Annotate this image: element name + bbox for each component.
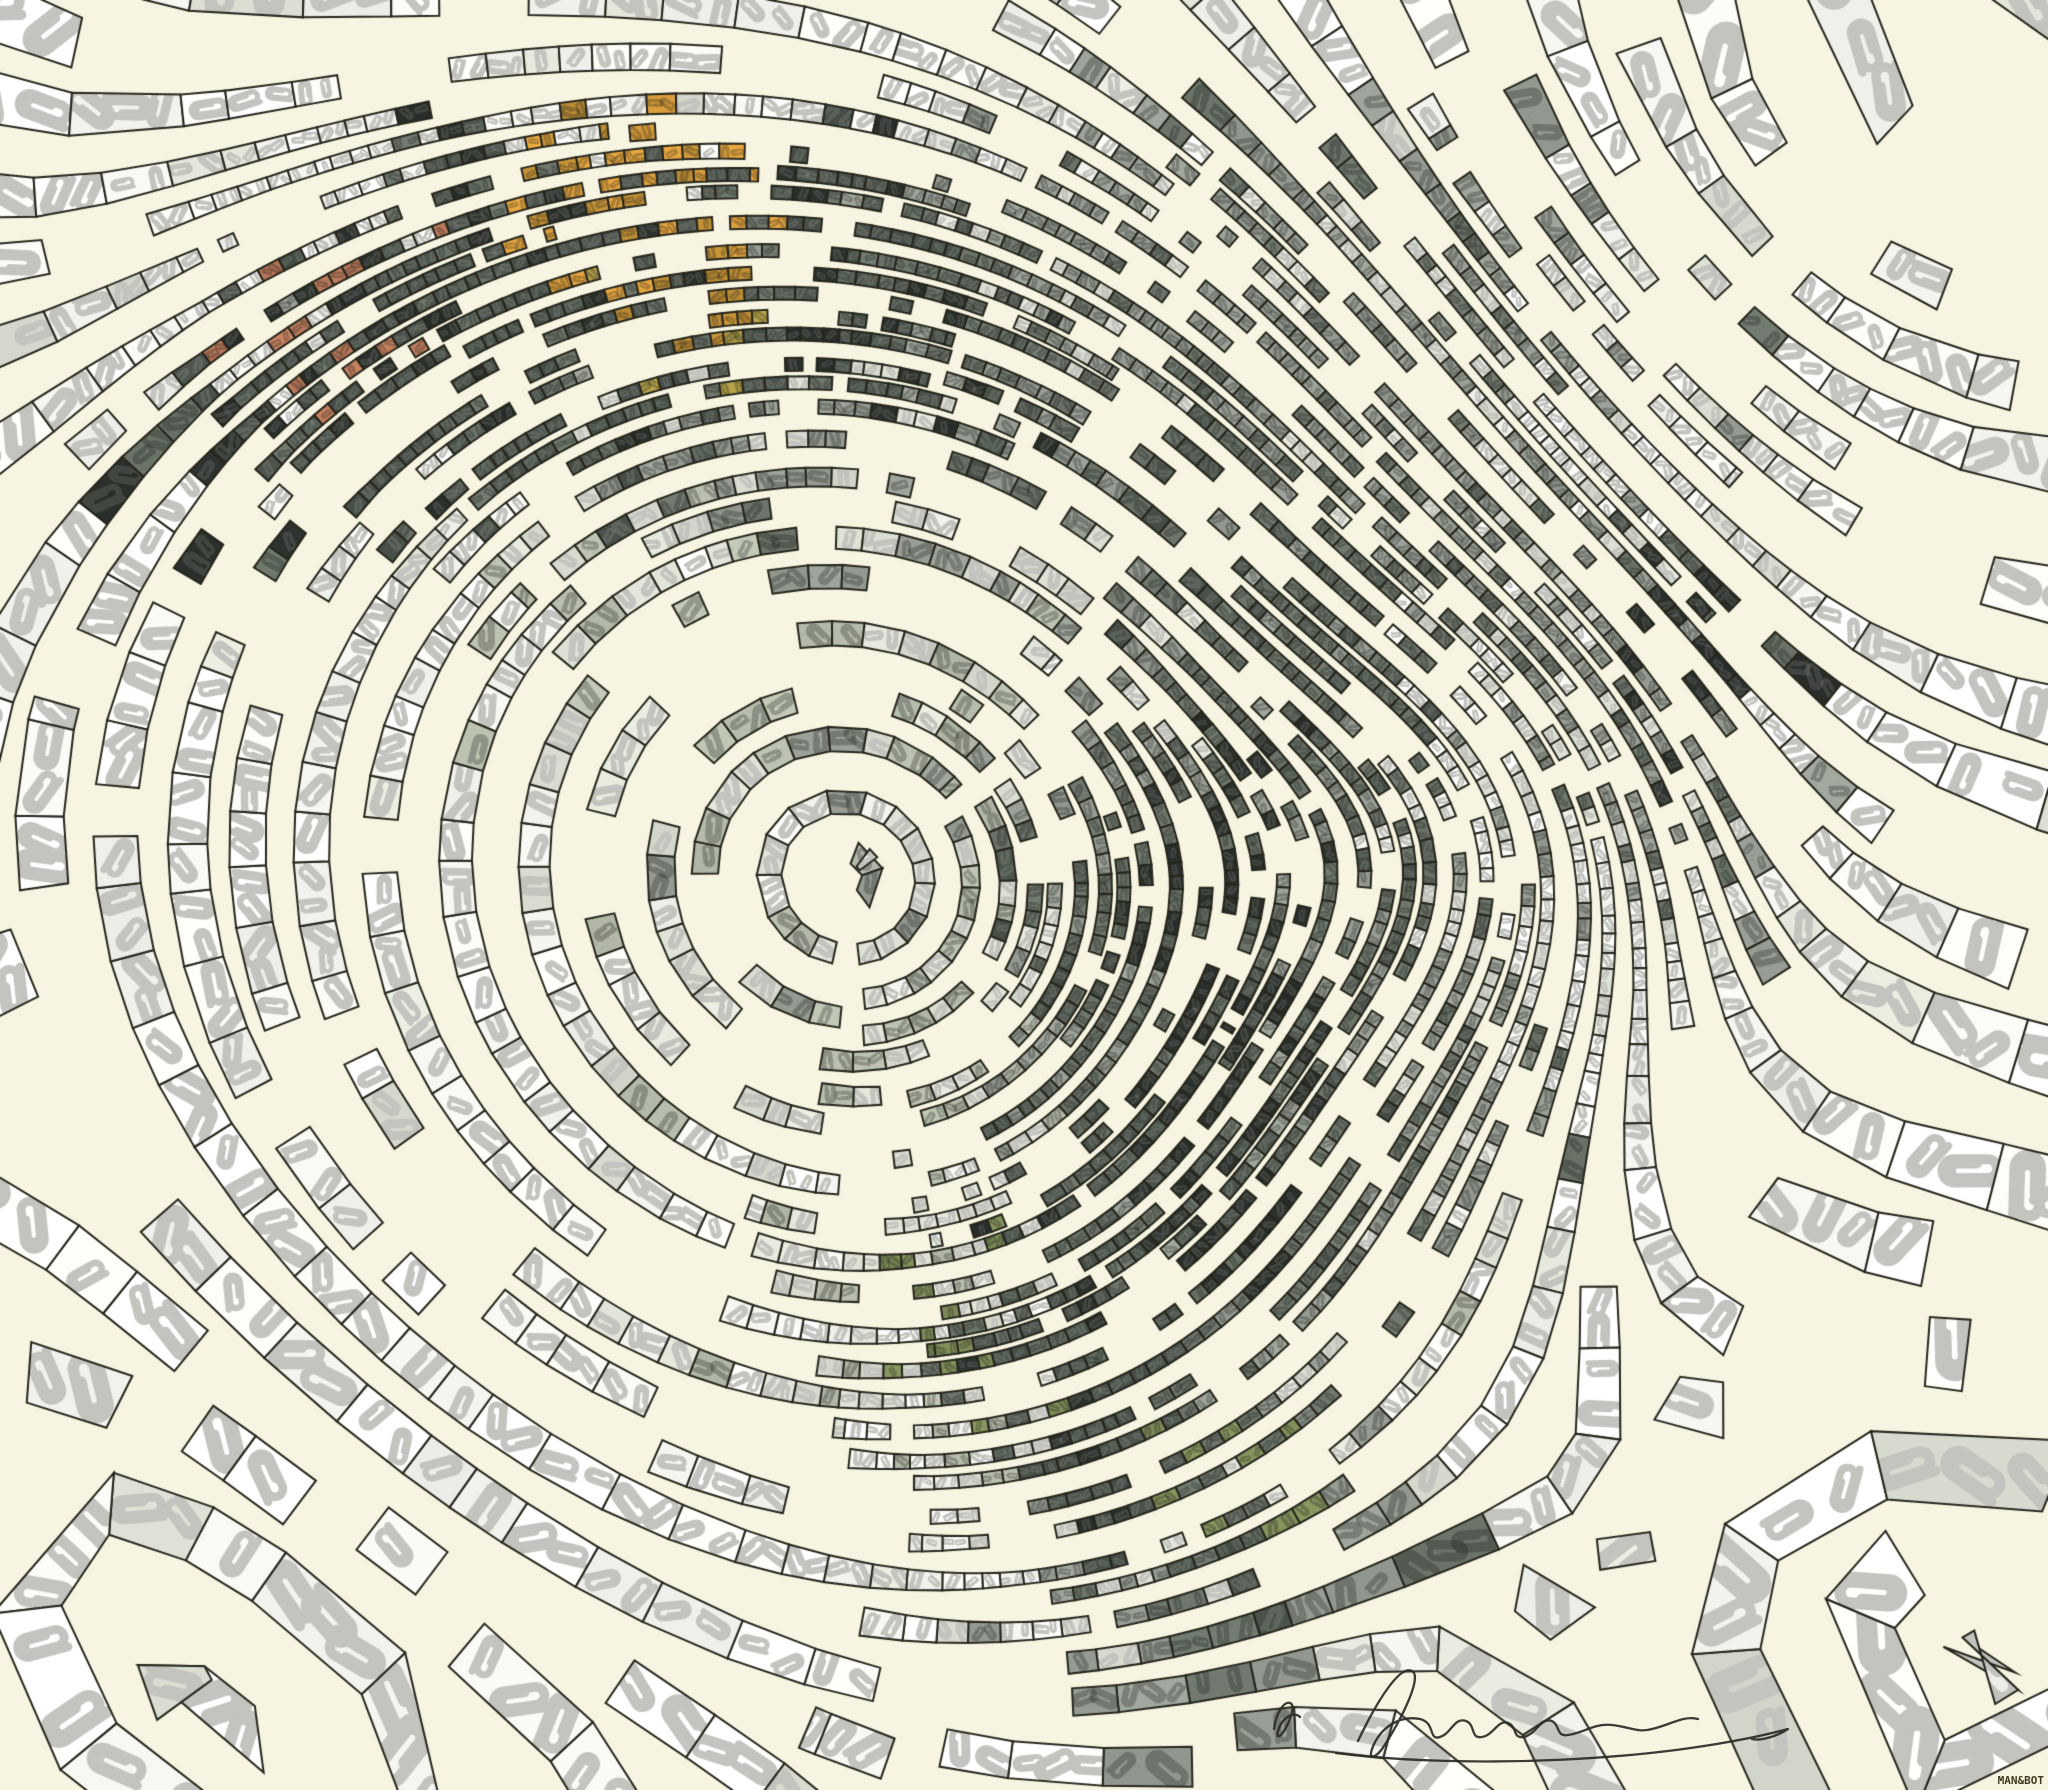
artwork: MAN&BOT	[0, 0, 2048, 1790]
mosaic-canvas	[0, 0, 2048, 1790]
credit-text: MAN&BOT	[1998, 1774, 2044, 1787]
